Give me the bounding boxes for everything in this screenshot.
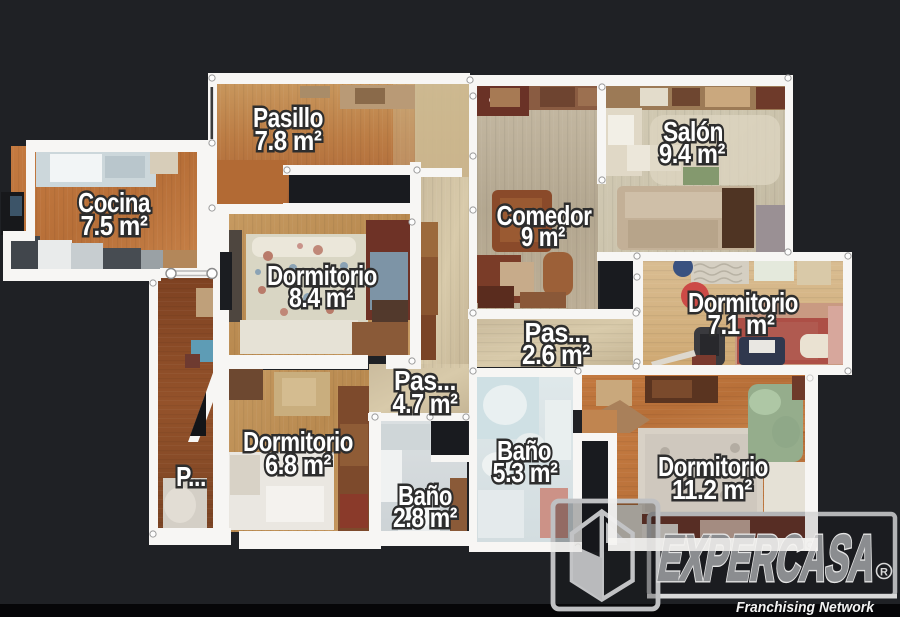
svg-text:4.7 m²: 4.7 m² (393, 388, 458, 419)
svg-text:9 m²: 9 m² (521, 221, 565, 252)
svg-text:8.4 m²: 8.4 m² (289, 282, 353, 313)
svg-text:9.4 m²: 9.4 m² (659, 138, 725, 169)
svg-text:7.1 m²: 7.1 m² (708, 309, 775, 340)
svg-text:EXPERCASA: EXPERCASA (653, 522, 882, 593)
svg-text:Franchising Network: Franchising Network (736, 599, 875, 616)
svg-text:7.8 m²: 7.8 m² (255, 125, 322, 156)
svg-text:5.3 m²: 5.3 m² (493, 457, 558, 488)
svg-text:7.5 m²: 7.5 m² (81, 210, 148, 241)
svg-text:6.8 m²: 6.8 m² (265, 449, 331, 480)
svg-text:R: R (880, 567, 888, 579)
svg-text:2.6 m²: 2.6 m² (522, 339, 590, 370)
svg-text:11.2 m²: 11.2 m² (672, 474, 752, 505)
svg-text:2.8 m²: 2.8 m² (393, 502, 457, 533)
svg-text:P...: P... (176, 461, 206, 492)
